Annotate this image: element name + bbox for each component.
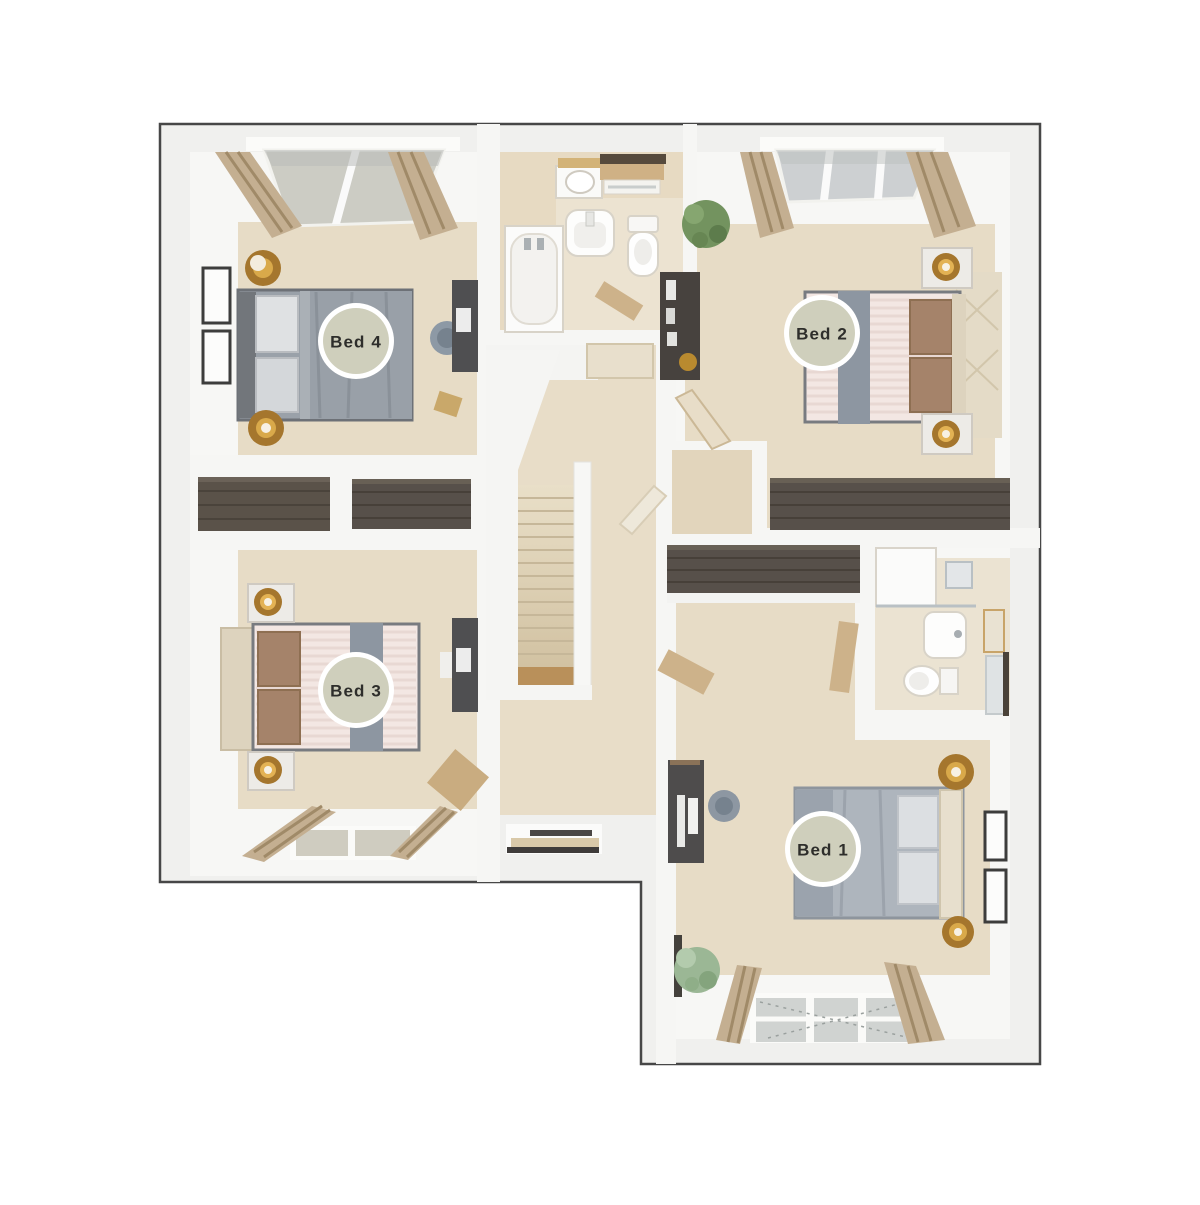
svg-text:Bed 2: Bed 2: [796, 325, 848, 344]
svg-text:Bed 4: Bed 4: [330, 333, 382, 352]
svg-text:Bed 3: Bed 3: [330, 682, 382, 701]
svg-text:Bed 1: Bed 1: [797, 841, 849, 860]
